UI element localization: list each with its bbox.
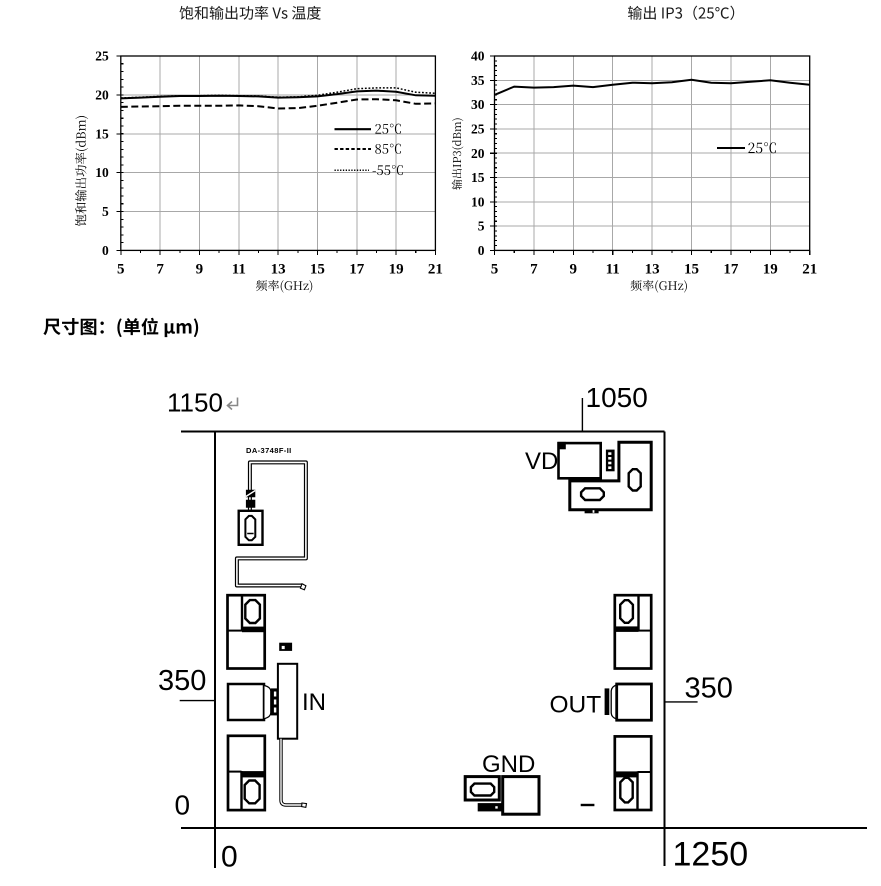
svg-text:OUT: OUT bbox=[550, 692, 602, 719]
svg-text:15: 15 bbox=[310, 262, 325, 278]
svg-text:5: 5 bbox=[102, 204, 109, 219]
svg-text:40: 40 bbox=[471, 49, 485, 64]
svg-text:21: 21 bbox=[802, 262, 817, 278]
svg-text:5: 5 bbox=[491, 262, 499, 278]
svg-text:9: 9 bbox=[570, 262, 578, 278]
svg-text:IN: IN bbox=[302, 689, 326, 716]
svg-text:17: 17 bbox=[349, 262, 365, 278]
svg-text:20: 20 bbox=[95, 88, 109, 103]
svg-text:1150: 1150 bbox=[167, 388, 223, 418]
svg-text:350: 350 bbox=[685, 673, 733, 705]
svg-text:5: 5 bbox=[478, 219, 485, 234]
svg-text:9: 9 bbox=[196, 262, 204, 278]
svg-text:25: 25 bbox=[95, 49, 109, 64]
svg-text:7: 7 bbox=[530, 262, 538, 278]
svg-text:13: 13 bbox=[645, 262, 660, 278]
svg-text:0: 0 bbox=[175, 790, 191, 821]
svg-text:11: 11 bbox=[606, 262, 620, 278]
svg-text:350: 350 bbox=[158, 665, 206, 697]
svg-text:0: 0 bbox=[221, 841, 238, 874]
svg-text:13: 13 bbox=[271, 262, 286, 278]
svg-text:0: 0 bbox=[478, 243, 485, 258]
svg-text:15: 15 bbox=[95, 126, 109, 141]
svg-text:5: 5 bbox=[117, 262, 125, 278]
svg-text:10: 10 bbox=[471, 194, 485, 209]
svg-text:19: 19 bbox=[763, 262, 778, 278]
svg-text:15: 15 bbox=[684, 262, 699, 278]
svg-text:17: 17 bbox=[723, 262, 739, 278]
svg-text:DA-3748F-II: DA-3748F-II bbox=[246, 446, 292, 455]
svg-text:19: 19 bbox=[389, 262, 404, 278]
svg-text:15: 15 bbox=[471, 170, 485, 185]
svg-text:1250: 1250 bbox=[673, 836, 749, 874]
svg-text:25: 25 bbox=[471, 122, 485, 137]
svg-text:11: 11 bbox=[232, 262, 246, 278]
svg-text:1050: 1050 bbox=[586, 382, 648, 413]
svg-text:30: 30 bbox=[471, 97, 485, 112]
svg-text:VD: VD bbox=[525, 448, 558, 475]
svg-text:20: 20 bbox=[471, 146, 485, 161]
svg-text:0: 0 bbox=[102, 243, 109, 258]
svg-text:35: 35 bbox=[471, 73, 485, 88]
svg-text:21: 21 bbox=[428, 262, 443, 278]
svg-text:10: 10 bbox=[95, 165, 109, 180]
svg-text:GND: GND bbox=[482, 751, 535, 778]
svg-text:7: 7 bbox=[156, 262, 164, 278]
